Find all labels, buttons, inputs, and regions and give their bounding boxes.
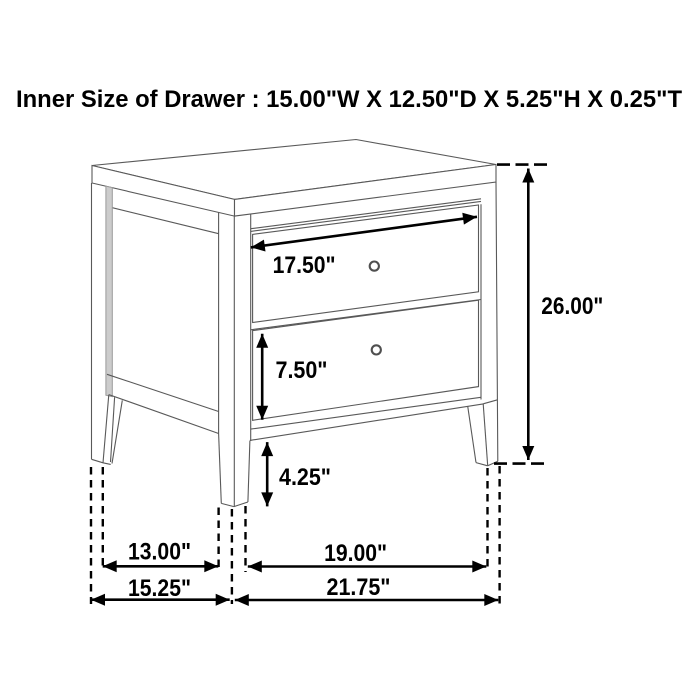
svg-text:17.50": 17.50"	[273, 252, 336, 279]
svg-text:19.00": 19.00"	[324, 540, 387, 567]
svg-text:4.25": 4.25"	[279, 464, 331, 491]
svg-text:26.00": 26.00"	[541, 293, 603, 320]
svg-text:7.50": 7.50"	[276, 357, 328, 384]
svg-text:15.25": 15.25"	[128, 575, 191, 602]
svg-text:13.00": 13.00"	[128, 539, 191, 566]
svg-text:Inner Size of Drawer : 15.00"W: Inner Size of Drawer : 15.00"W X 12.50"D…	[16, 86, 682, 113]
svg-text:21.75": 21.75"	[327, 574, 391, 601]
